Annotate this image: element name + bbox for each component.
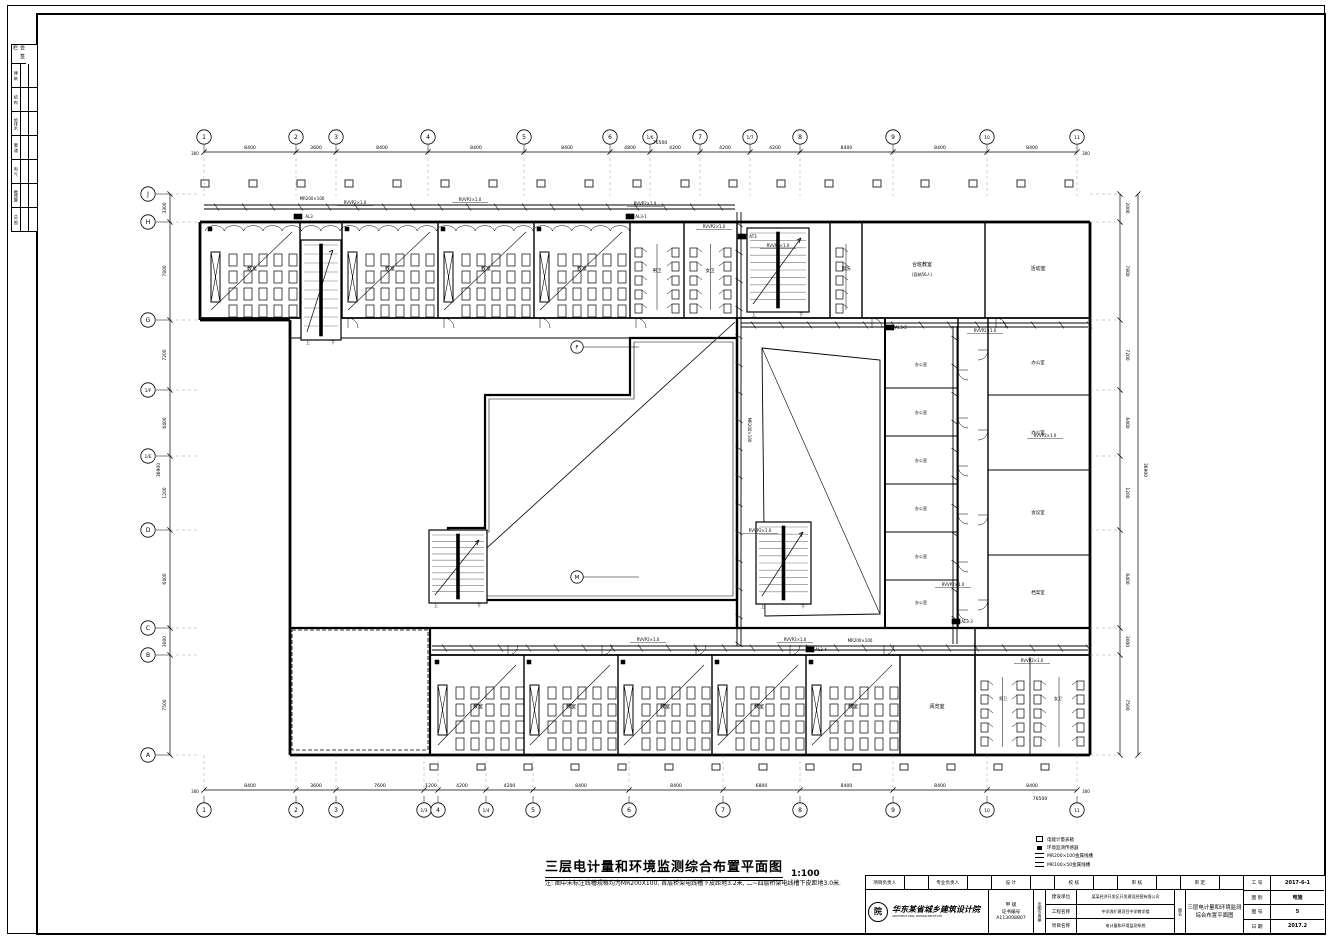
- canopy-column: [441, 180, 449, 187]
- desk: [366, 271, 374, 283]
- meta-row: 日 期2017.2: [1244, 920, 1324, 934]
- room-label: 教室: [577, 265, 587, 272]
- grid-bubble-label: 7: [721, 807, 725, 814]
- canopy-column: [681, 180, 689, 187]
- desk: [522, 288, 530, 300]
- desk: [845, 738, 853, 750]
- signature-blank-cell: [21, 208, 30, 231]
- project-row-value: 中学改扩建项目中学教学楼: [1077, 905, 1174, 919]
- grid-bubble-label: 3: [334, 134, 338, 141]
- stall-door: [1041, 723, 1046, 727]
- stamp-cell: 出图专用章: [1034, 890, 1046, 933]
- desk: [593, 738, 601, 750]
- grid-bubble-label: 3: [334, 807, 338, 814]
- titleblock-role-label: 设 计: [992, 876, 1031, 889]
- dim-text: 2000: [1124, 202, 1130, 213]
- toilet-stall: [672, 290, 679, 299]
- signature-discipline-label: 建 筑: [12, 64, 21, 87]
- project-row: 项目名称电计量和环境监测系统: [1046, 919, 1174, 933]
- stair-up-label: 上: [306, 339, 310, 345]
- canopy-column: [825, 180, 833, 187]
- meta-row-label: 日 期: [1244, 920, 1271, 934]
- dim-text: 6400: [162, 417, 168, 428]
- cable-label: RVVP2×1.0: [459, 197, 482, 202]
- signature-blank-cell: [21, 112, 30, 135]
- toilet-stall: [635, 248, 642, 257]
- desk: [618, 305, 626, 317]
- room-label: 教室: [481, 265, 491, 272]
- desk: [687, 687, 695, 699]
- titleblock-role-value: [1220, 876, 1243, 889]
- door-arc: [978, 515, 988, 525]
- legend-label: 环境监测传感器: [1047, 846, 1079, 853]
- signature-discipline-label: 给排水: [12, 112, 21, 135]
- dim-text: 8400: [1026, 145, 1038, 151]
- meta-row-value: 2017.2: [1271, 920, 1324, 934]
- room-label: 会议室: [1031, 509, 1045, 516]
- inner-axis-bubble-label: M: [575, 575, 580, 581]
- canopy-column: [921, 180, 929, 187]
- desk: [492, 305, 500, 317]
- desk: [588, 271, 596, 283]
- canopy-column: [537, 180, 545, 187]
- dim-text: 3600: [310, 145, 322, 151]
- room-label: 教室: [848, 703, 858, 710]
- signature-discipline-label: 结 构: [12, 88, 21, 111]
- cable-label: RVVP2×1.0: [767, 243, 790, 248]
- toilet-stall: [981, 709, 988, 718]
- canopy-column: [585, 180, 593, 187]
- desk: [381, 288, 389, 300]
- door-arc: [958, 370, 968, 380]
- toilet-stall: [724, 262, 731, 271]
- desk: [860, 738, 868, 750]
- desk: [672, 738, 680, 750]
- canopy-column: [524, 764, 532, 770]
- grid-bubble-label: B: [146, 652, 150, 659]
- certificate-cell: 甲 级 证书编号 A113008807: [989, 890, 1034, 933]
- toilet-stall: [672, 262, 679, 271]
- desk: [501, 738, 509, 750]
- paper-sheet: 上下上下上下上下AL3AL3-1AT3AL3-2AL3-3AL3-4184002…: [0, 0, 1331, 939]
- signature-blank-cell: [29, 184, 37, 207]
- dim-text: 3000: [162, 636, 168, 647]
- meta-row-value: 电施: [1271, 891, 1324, 905]
- desk: [501, 721, 509, 733]
- stall-door: [667, 248, 672, 252]
- desk: [274, 305, 282, 317]
- distribution-box-label: AL3-3: [961, 619, 973, 624]
- desk: [642, 704, 650, 716]
- room-label: 办公室: [915, 599, 927, 605]
- desk: [558, 288, 566, 300]
- dim-total: 76500: [1033, 796, 1048, 802]
- room-label: 女卫: [1054, 695, 1062, 701]
- title-block-signature-row: 项目负责人专业负责人设 计校 核审 核审 定: [866, 876, 1243, 890]
- toilet-stall: [635, 262, 642, 271]
- stall-door: [1072, 695, 1077, 699]
- stall-door: [719, 248, 724, 252]
- env-sensor: [441, 227, 445, 231]
- legend-row: MR100×50金属线槽: [1035, 862, 1093, 871]
- cable-label: RVVP2×1.0: [974, 328, 997, 333]
- meta-row: 工 号2017-6-1: [1244, 876, 1324, 891]
- toilet-stall: [672, 248, 679, 257]
- dim-text: 300: [191, 151, 199, 156]
- dim-text: 6800: [756, 783, 768, 789]
- desk: [830, 687, 838, 699]
- drawing-note: 注: 图中未标注线槽规格均为MR200X100, 首层桥架电线槽下皮距地3.2米…: [545, 878, 841, 887]
- desk: [751, 687, 759, 699]
- cable-label: RVVP2×1.0: [942, 582, 965, 587]
- canopy-column: [873, 180, 881, 187]
- desk: [657, 687, 665, 699]
- toilet-stall: [672, 304, 679, 313]
- desk: [830, 738, 838, 750]
- canopy-column: [201, 180, 209, 187]
- stall-door: [719, 304, 724, 308]
- desk: [593, 704, 601, 716]
- desk: [618, 288, 626, 300]
- desk: [507, 271, 515, 283]
- door-arc: [978, 350, 988, 360]
- meta-row: 图 别电施: [1244, 891, 1324, 906]
- dim-text: 7200: [1124, 349, 1130, 360]
- canopy-column: [969, 180, 977, 187]
- dim-text: 8400: [670, 783, 682, 789]
- project-row-label: 建设单位: [1046, 890, 1077, 904]
- grid-bubble-label: 9: [891, 807, 895, 814]
- desk: [736, 687, 744, 699]
- desk: [516, 738, 524, 750]
- desk: [608, 704, 616, 716]
- canopy-column: [430, 764, 438, 770]
- desk: [486, 721, 494, 733]
- stall-door: [843, 262, 848, 266]
- dim-text: 8400: [1026, 783, 1038, 789]
- meta-row-value: 5: [1271, 905, 1324, 919]
- door-arc: [958, 562, 968, 572]
- toilet-stall: [635, 276, 642, 285]
- signature-blank-cell: [21, 88, 30, 111]
- desk: [507, 305, 515, 317]
- desk: [244, 305, 252, 317]
- desk: [289, 254, 297, 266]
- desk: [573, 254, 581, 266]
- desk: [516, 687, 524, 699]
- signature-blank-cell: [21, 136, 30, 159]
- toilet-stall: [1017, 695, 1024, 704]
- canopy-column: [947, 764, 955, 770]
- room-label: 教室: [385, 265, 395, 272]
- desk: [456, 687, 464, 699]
- toilet-stall: [1077, 737, 1084, 746]
- dim-text: 7600: [374, 783, 386, 789]
- desk: [516, 721, 524, 733]
- legend-symbol-sq: [1035, 836, 1044, 846]
- desk: [501, 687, 509, 699]
- legend: 电能计量表箱环境监测传感器MR200×100金属线槽MR100×50金属线槽: [1035, 836, 1093, 870]
- dim-text: 8400: [841, 145, 853, 151]
- dim-text: 6400: [1124, 417, 1130, 428]
- meta-row: 图 号5: [1244, 905, 1324, 920]
- inner-hall-wall-inner: [452, 342, 733, 596]
- legend-symbol-dl: [1035, 853, 1044, 862]
- dim-text: 3300: [162, 202, 168, 213]
- stall-door: [988, 723, 993, 727]
- dim-text: 8400: [841, 783, 853, 789]
- stall-door: [697, 304, 702, 308]
- legend-row: 环境监测传感器: [1035, 846, 1093, 854]
- desk: [244, 288, 252, 300]
- desk: [603, 305, 611, 317]
- desk: [578, 704, 586, 716]
- stair-up-label: 上: [752, 311, 756, 317]
- desk: [781, 704, 789, 716]
- desk: [548, 687, 556, 699]
- legend-row: 电能计量表箱: [1035, 836, 1093, 846]
- toilet-stall: [690, 276, 697, 285]
- stall-door: [667, 304, 672, 308]
- toilet-stall: [690, 304, 697, 313]
- desk: [456, 738, 464, 750]
- institute-logo-icon: 院: [868, 902, 888, 922]
- canopy-scallop: [205, 226, 630, 231]
- desk: [522, 305, 530, 317]
- desk: [702, 721, 710, 733]
- toilet-stall: [724, 248, 731, 257]
- dim-text: 7800: [1124, 265, 1130, 276]
- cable-label: RVVP2×1.0: [344, 200, 367, 205]
- stall-door: [642, 290, 647, 294]
- desk: [274, 271, 282, 283]
- toilet-stall: [1034, 709, 1041, 718]
- distribution-box: [806, 647, 814, 652]
- dim-text: 3000: [1124, 636, 1130, 647]
- desk: [558, 305, 566, 317]
- canopy-column: [618, 764, 626, 770]
- grid-bubble-label: 6: [627, 807, 631, 814]
- title-block-main: 院 华东某省城乡建筑设计院 ARCHITECTURAL DESIGN INSTI…: [866, 890, 1243, 933]
- desk: [563, 721, 571, 733]
- desk: [657, 738, 665, 750]
- room-label: 办公室: [915, 553, 927, 559]
- desk: [642, 738, 650, 750]
- dim-text: 7800: [162, 265, 168, 276]
- door-arc: [958, 466, 968, 476]
- distribution-box-label: AL3-1: [635, 214, 647, 219]
- desk: [845, 687, 853, 699]
- grade-label: 甲 级: [1006, 902, 1017, 908]
- canopy-column: [249, 180, 257, 187]
- stall-door: [1072, 709, 1077, 713]
- project-row-value: 电计量和环境监测系统: [1077, 919, 1174, 933]
- title-block-meta: 工 号2017-6-1图 别电施图 号5日 期2017.2: [1244, 876, 1324, 933]
- toilet-stall: [836, 304, 843, 313]
- stall-door: [1012, 709, 1017, 713]
- desk: [642, 687, 650, 699]
- dim-text: 4800: [624, 145, 636, 151]
- toilet-stall: [1034, 723, 1041, 732]
- desk: [411, 254, 419, 266]
- desk: [578, 721, 586, 733]
- cable-label: RVVP2×1.0: [703, 224, 726, 229]
- grid-bubble-label: 4: [426, 134, 430, 141]
- grid-bubble-label: 1: [202, 134, 206, 141]
- toilet-stall: [981, 723, 988, 732]
- canopy-column: [1017, 180, 1025, 187]
- stall-door: [843, 290, 848, 294]
- titleblock-role-label: 校 核: [1055, 876, 1094, 889]
- grid-bubble-label: 2: [294, 807, 298, 814]
- desk: [573, 305, 581, 317]
- legend-symbol-dl: [1035, 862, 1044, 871]
- stall-door: [719, 276, 724, 280]
- desk: [563, 687, 571, 699]
- stall-door: [667, 262, 672, 266]
- stall-door: [697, 290, 702, 294]
- desk: [426, 288, 434, 300]
- desk: [289, 305, 297, 317]
- dim-text: 4200: [669, 145, 681, 151]
- canopy-column: [853, 764, 861, 770]
- desk: [477, 254, 485, 266]
- desk: [672, 704, 680, 716]
- desk: [890, 687, 898, 699]
- canopy-column: [489, 180, 497, 187]
- room-label: 教室: [754, 703, 764, 710]
- desk: [672, 721, 680, 733]
- desk: [796, 721, 804, 733]
- institute-name-en: ARCHITECTURAL DESIGN INSTITUTE: [892, 914, 980, 918]
- desk: [588, 254, 596, 266]
- stair-up-label: 上: [761, 603, 765, 609]
- grid-bubble-label: 1/7: [746, 135, 753, 141]
- titleblock-role-value: [1031, 876, 1055, 889]
- desk: [796, 687, 804, 699]
- distribution-box-label: AT3: [749, 234, 757, 239]
- desk: [563, 738, 571, 750]
- title-block-drawing-name: 三层电计量和环境监测 综合布置平面图: [1186, 890, 1243, 933]
- cad-sheet: { "plan": { "title": "三层电计量和环境监测综合布置平面图"…: [0, 0, 1331, 939]
- signature-blank-cell: [21, 184, 30, 207]
- cable-label: RVVP2×1.0: [637, 637, 660, 642]
- desk: [411, 305, 419, 317]
- toilet-stall: [690, 248, 697, 257]
- desk: [603, 288, 611, 300]
- stall-door: [1072, 723, 1077, 727]
- project-row: 建设单位某某经济开发区开发建设经营有限公司: [1046, 890, 1174, 905]
- room-label: 男卫: [999, 696, 1007, 701]
- dim-text: 4200: [504, 783, 516, 789]
- stall-door: [642, 276, 647, 280]
- desk: [702, 738, 710, 750]
- grid-bubble-label: H: [146, 219, 151, 226]
- desk: [492, 254, 500, 266]
- drawing-name-line2: 综合布置平面图: [1196, 912, 1234, 920]
- stall-door: [1012, 723, 1017, 727]
- stall-door: [642, 304, 647, 308]
- stall-door: [1012, 681, 1017, 685]
- canopy-column: [806, 764, 814, 770]
- desk: [426, 271, 434, 283]
- dim-text: 6400: [162, 573, 168, 584]
- toilet-stall: [836, 290, 843, 299]
- grid-bubble-label: 7: [698, 134, 702, 141]
- cable-label: RVVP2×1.0: [1021, 658, 1044, 663]
- desk: [608, 687, 616, 699]
- signature-column: 会 签 栏 建 筑结 构给排水暖 通电 气概预算总 图: [11, 44, 38, 232]
- grid-bubble-label: 1: [202, 807, 206, 814]
- desk: [608, 738, 616, 750]
- signature-discipline-label: 总 图: [12, 208, 21, 231]
- meta-row-label: 图 号: [1244, 905, 1271, 919]
- desk: [477, 271, 485, 283]
- stall-door: [988, 695, 993, 699]
- signature-row: 总 图: [12, 208, 37, 231]
- dim-text: 8400: [244, 783, 256, 789]
- signature-blank-cell: [21, 160, 30, 183]
- grid-bubble-label: C: [146, 625, 150, 632]
- dim-text: 8400: [934, 783, 946, 789]
- desk: [766, 704, 774, 716]
- stair-down-label: 下: [331, 340, 335, 345]
- desk: [618, 254, 626, 266]
- tray-label: MR200×100: [848, 638, 873, 643]
- desk: [522, 254, 530, 266]
- legend-label: MR200×100金属线槽: [1047, 854, 1093, 861]
- toilet-stall: [1034, 695, 1041, 704]
- desk: [274, 254, 282, 266]
- env-sensor: [527, 660, 531, 664]
- institute-name: 华东某省城乡建筑设计院: [892, 905, 980, 914]
- yard-dashed-outline: [292, 630, 428, 750]
- drawing-name-line1: 三层电计量和环境监测: [1188, 904, 1242, 912]
- desk: [366, 305, 374, 317]
- signature-blank-cell: [29, 208, 37, 231]
- cable-label: RVVP2×1.0: [634, 201, 657, 206]
- design-institute-logo-cell: 院 华东某省城乡建筑设计院 ARCHITECTURAL DESIGN INSTI…: [866, 890, 989, 933]
- dim-total: 36900: [1142, 463, 1148, 477]
- project-row-value: 某某经济开发区开发建设经营有限公司: [1077, 890, 1174, 904]
- desk: [366, 254, 374, 266]
- env-sensor: [208, 227, 212, 231]
- desk: [593, 687, 601, 699]
- desk: [396, 305, 404, 317]
- room-label: 办公室: [915, 505, 927, 511]
- cable-label: RVVP2×1.0: [749, 528, 772, 533]
- canopy-column: [393, 180, 401, 187]
- desk: [608, 721, 616, 733]
- desk: [522, 271, 530, 283]
- desk: [687, 704, 695, 716]
- desk: [462, 288, 470, 300]
- grid-bubble-label: 9: [891, 134, 895, 141]
- desk: [411, 271, 419, 283]
- room-label: 办公室: [915, 457, 927, 463]
- desk: [830, 704, 838, 716]
- desk: [471, 738, 479, 750]
- dim-text: 3600: [310, 783, 322, 789]
- signature-discipline-label: 暖 通: [12, 136, 21, 159]
- desk: [426, 305, 434, 317]
- desk: [411, 288, 419, 300]
- canopy-column: [777, 180, 785, 187]
- toilet-stall: [981, 737, 988, 746]
- stall-door: [697, 248, 702, 252]
- distribution-box: [294, 214, 302, 219]
- desk: [426, 254, 434, 266]
